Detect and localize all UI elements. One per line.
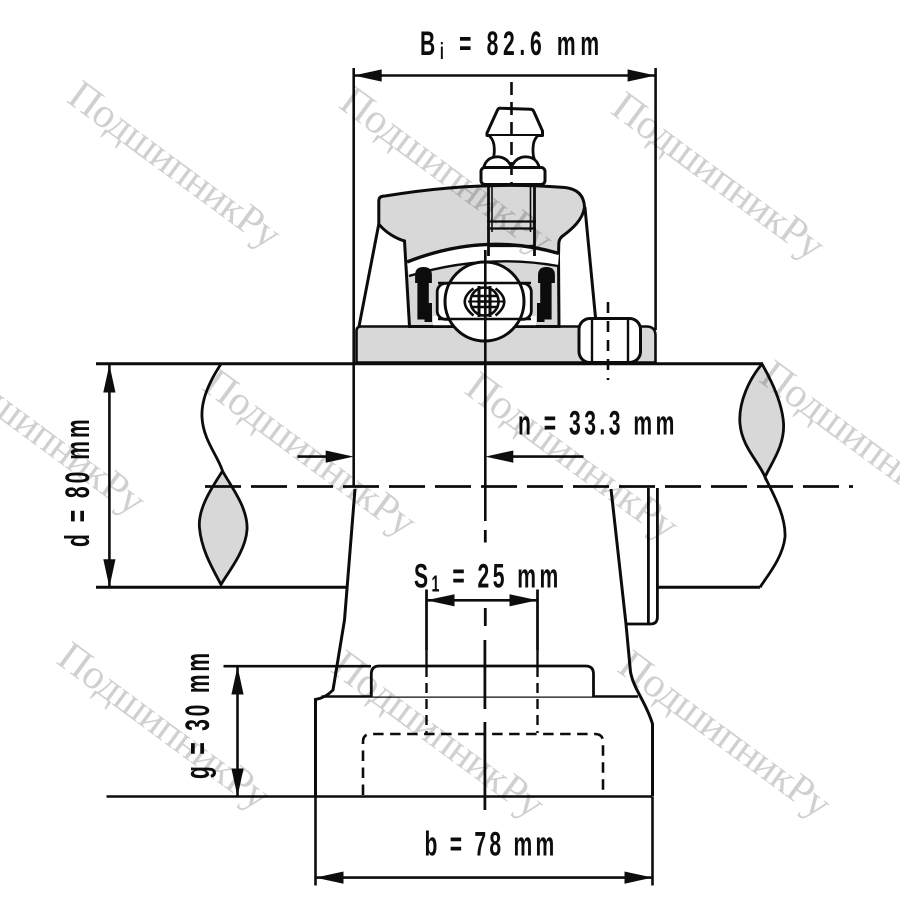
svg-text:b = 78 mm: b = 78 mm	[425, 824, 558, 862]
